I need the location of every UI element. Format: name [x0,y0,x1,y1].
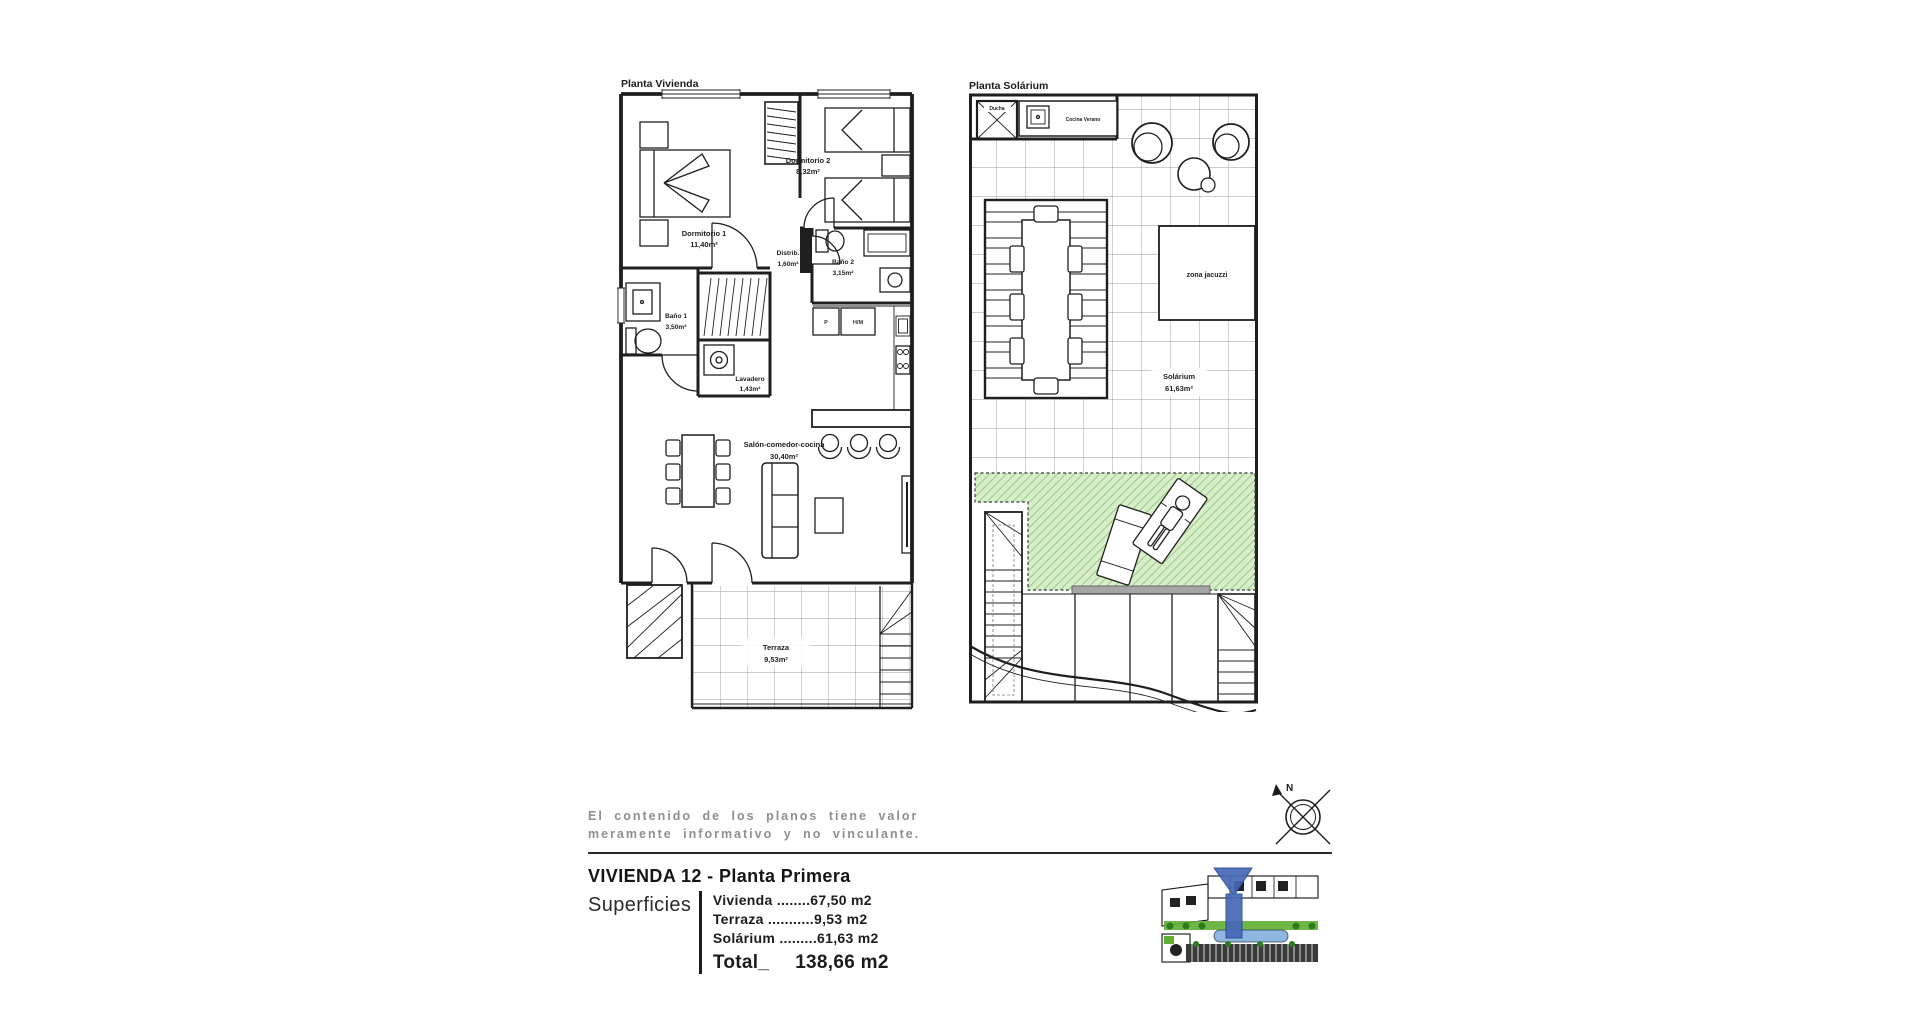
disclaimer-line1: El contenido de los planos tiene valor [588,807,948,825]
beds-single [825,108,910,222]
label-terraza-name: Terraza [763,643,790,652]
lower-terrace [970,586,1256,712]
sofa [762,463,798,558]
label-dormitorio1-area: 11,40m² [690,240,718,249]
page-title: VIVIENDA 12 - Planta Primera [588,866,851,887]
superficies-row-vivienda: Vivienda ........67,50 m2 [713,891,889,910]
solarium-stairs-left [985,512,1022,702]
label-dormitorio2-name: Dormitorio 2 [786,156,831,165]
vivienda-walls [621,94,912,583]
terraza-area [692,583,912,708]
label-lavadero-area: 1,43m² [740,386,762,393]
label-terraza-area: 9,53m² [764,655,788,664]
total-value: 138,66 m2 [795,952,889,974]
label-cocina-verano: Cocina Verano [1066,117,1101,123]
superficies-total-row: Total_ 138,66 m2 [713,952,889,974]
label-zona-jacuzzi: zona jacuzzi [1187,272,1228,279]
label-distrib-name: Distrib. [777,250,800,257]
divider-rule [588,852,1332,854]
label-solarium-area: 61,63m² [1165,384,1193,393]
bathroom1-fixtures [626,283,661,354]
north-label: N [1286,783,1293,794]
total-label: Total_ [713,952,769,974]
superficies-block: Superficies Vivienda ........67,50 m2 Te… [588,891,889,974]
label-bano2-name: Baño 2 [832,259,854,266]
label-salon-name: Salón-comedor-cocina [744,440,826,449]
label-salon-area: 30,40m² [770,452,798,461]
north-arrow [1272,784,1282,796]
label-bano1-area: 3,50m² [666,324,688,331]
kitchen [812,306,912,459]
superficies-label: Superficies [588,891,691,974]
compass-rose: N [1256,780,1351,858]
bathroom2-fixtures [816,230,910,292]
dining-table [666,435,730,507]
label-dormitorio2-area: 8,32m² [796,167,820,176]
wardrobe [765,102,798,164]
label-solarium-name: Solárium [1163,372,1195,381]
washing-machine [704,345,734,375]
appliance-label-hm: H/M [853,320,864,326]
disclaimer-line2: meramente informativo y no vinculante. [588,825,948,843]
superficies-rows: Vivienda ........67,50 m2 Terraza ......… [713,891,889,974]
staircase [704,278,767,336]
plan-solarium-title: Planta Solárium [969,80,1048,92]
site-plan-thumbnail [1156,864,1336,979]
label-dormitorio1-name: Dormitorio 1 [682,229,727,238]
solarium-stairs-right [1218,594,1255,702]
superficies-row-terraza: Terraza ...........9,53 m2 [713,910,889,929]
vivienda-windows [617,89,891,323]
superficies-row-solarium: Solárium .........61,63 m2 [713,929,889,948]
entry-stairs [627,585,682,658]
site-parking [1186,941,1318,962]
disclaimer: El contenido de los planos tiene valor m… [588,807,948,843]
plan-solarium-drawing: Planta Solárium Ducha Cocina Verano [967,80,1262,712]
superficies-divider [699,891,702,974]
label-lavadero-name: Lavadero [735,376,764,383]
plan-vivienda-drawing: Planta Vivienda [612,78,918,722]
label-distrib-area: 1,60m² [778,261,800,268]
coffee-table [815,498,843,533]
pergola-dining [985,200,1107,398]
site-pool [1214,930,1288,942]
label-bano1-name: Baño 1 [665,313,687,320]
label-ducha: Ducha [989,106,1005,112]
label-bano2-area: 3,15m² [833,270,855,277]
bed-double [640,122,730,246]
plan-vivienda-title: Planta Vivienda [621,78,699,90]
appliance-label-p: P [824,320,828,326]
floorplan-sheet: { "plan_vivienda": { "title": "Planta Vi… [0,0,1920,1024]
